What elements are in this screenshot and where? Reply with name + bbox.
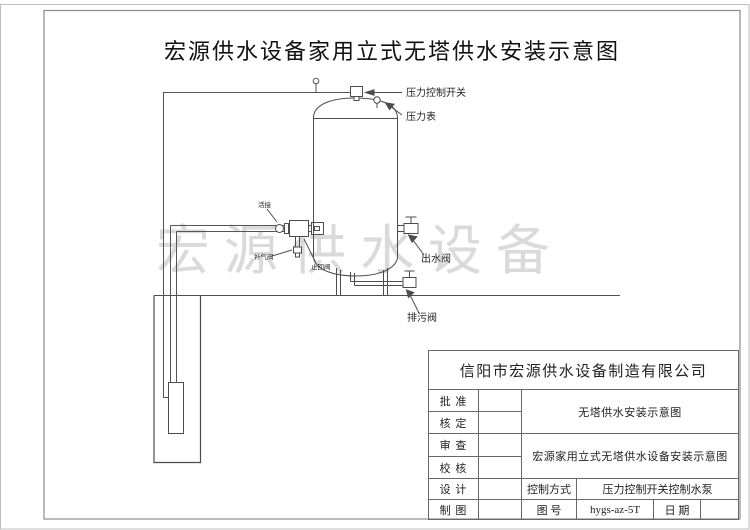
control-mode-value: 压力控制开关控制水泵 xyxy=(577,479,739,500)
row-label-proof: 校 核 xyxy=(429,457,479,479)
control-mode-label: 控制方式 xyxy=(522,479,577,500)
annotation-labels: 压力控制开关 压力表 出水阀 排污阀 活接 补气阀 止回阀 xyxy=(254,86,466,324)
leader-air-valve xyxy=(272,250,292,256)
outlet-valve-symbol xyxy=(398,217,419,234)
union-fitting xyxy=(276,225,284,233)
row-label-ratify: 核 定 xyxy=(429,412,479,434)
control-cable-line xyxy=(164,78,352,397)
pressure-gauge-label: 压力表 xyxy=(406,110,436,123)
company-name: 信阳市宏源供水设备制造有限公司 xyxy=(429,351,739,390)
pressure-switch-label: 压力控制开关 xyxy=(406,86,466,99)
drawing-no-value: hygs-az-5T xyxy=(577,500,654,520)
row-label-review: 审 查 xyxy=(429,434,479,457)
delivery-pipe xyxy=(171,226,314,383)
air-inlet-valve-fitting xyxy=(294,247,302,253)
doc-title-small: 无塔供水安装示意图 xyxy=(522,390,739,434)
drawing-no-label: 图 号 xyxy=(522,500,577,520)
outlet-valve-label: 出水阀 xyxy=(421,252,451,265)
title-block: 信阳市宏源供水设备制造有限公司 批 准 无塔供水安装示意图 核 定 审 查 宏源… xyxy=(428,350,738,519)
signature-cell-draft xyxy=(479,500,522,520)
row-label-draft: 制 图 xyxy=(429,500,479,520)
arrow-outlet-valve xyxy=(409,235,417,242)
check-valve-body xyxy=(290,221,309,237)
signature-cell-ratify xyxy=(479,412,522,434)
arrow-pressure-switch xyxy=(366,90,375,95)
row-label-approve: 批 准 xyxy=(429,390,479,412)
well xyxy=(154,296,201,463)
engineering-drawing-page: 宏源供水设备 宏源供水设备家用立式无塔供水安装示意图 xyxy=(0,0,750,530)
title-block-table: 信阳市宏源供水设备制造有限公司 批 准 无塔供水安装示意图 核 定 审 查 宏源… xyxy=(428,350,739,520)
date-label: 日 期 xyxy=(654,500,701,520)
date-value-cell xyxy=(701,500,739,520)
signature-cell-design xyxy=(479,479,522,500)
union-label: 活接 xyxy=(258,200,272,209)
leader-union xyxy=(267,209,277,222)
signature-cell-approve xyxy=(479,390,522,412)
leader-check-valve xyxy=(304,239,316,263)
doc-title-full: 宏源家用立式无塔供水设备安装示意图 xyxy=(522,434,739,479)
signature-cell-proof xyxy=(479,457,522,479)
check-valve-label: 止回阀 xyxy=(311,262,331,271)
arrow-drain-valve xyxy=(407,290,414,297)
drain-valve-label: 排污阀 xyxy=(407,311,437,324)
row-label-design: 设 计 xyxy=(429,479,479,500)
air-inlet-valve-label: 补气阀 xyxy=(254,252,274,261)
pressure-gauge-symbol xyxy=(374,97,380,108)
annotation-arrows xyxy=(267,90,424,313)
signature-cell-review xyxy=(479,434,522,457)
submersible-pump xyxy=(169,383,184,434)
check-valve-assembly xyxy=(276,221,324,258)
